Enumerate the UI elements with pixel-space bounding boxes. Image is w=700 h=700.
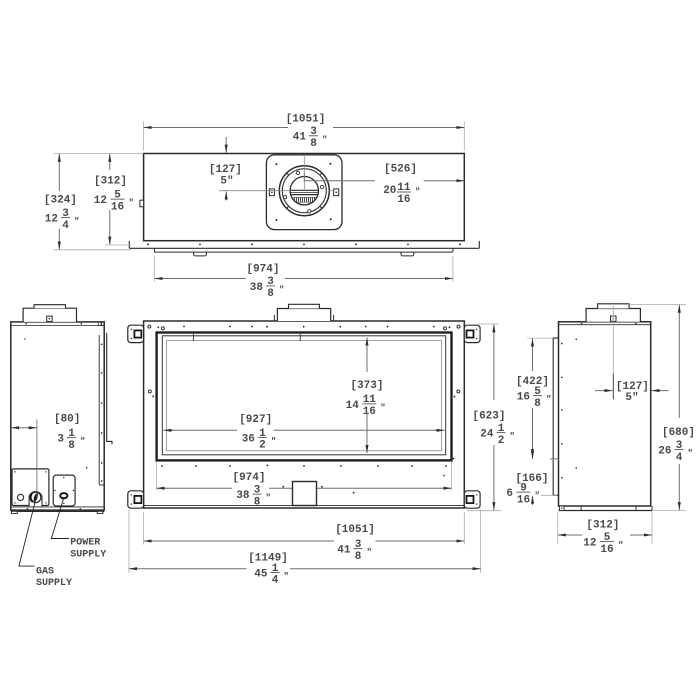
svg-text:SUPPLY: SUPPLY	[36, 578, 72, 589]
svg-text:3: 3	[267, 276, 274, 288]
svg-text:3: 3	[310, 126, 317, 138]
svg-text:41: 41	[293, 132, 307, 144]
svg-text:[1051]: [1051]	[286, 113, 326, 125]
svg-text:[80]: [80]	[54, 414, 80, 426]
svg-text:": "	[367, 548, 372, 558]
svg-text:": "	[74, 217, 79, 227]
svg-text:": "	[380, 403, 385, 413]
svg-text:[373]: [373]	[350, 380, 383, 392]
svg-text:": "	[510, 432, 515, 442]
svg-text:3: 3	[62, 208, 69, 220]
svg-text:8: 8	[355, 551, 362, 563]
svg-text:6: 6	[506, 488, 513, 500]
svg-text:": "	[266, 493, 271, 503]
svg-text:": "	[80, 437, 85, 447]
svg-text:[526]: [526]	[384, 163, 417, 175]
svg-text:4: 4	[272, 575, 279, 587]
svg-text:41: 41	[337, 545, 351, 557]
svg-text:": "	[322, 135, 327, 145]
svg-text:2: 2	[259, 440, 266, 452]
svg-text:": "	[546, 395, 551, 405]
svg-text:[1051]: [1051]	[335, 524, 375, 536]
svg-text:38: 38	[236, 490, 250, 502]
svg-text:[974]: [974]	[232, 472, 265, 484]
svg-text:3: 3	[355, 539, 362, 551]
svg-text:SUPPLY: SUPPLY	[70, 549, 106, 560]
svg-text:8: 8	[254, 496, 261, 508]
svg-text:1: 1	[68, 428, 75, 440]
svg-text:": "	[284, 572, 289, 582]
svg-text:9: 9	[520, 482, 527, 494]
svg-text:38: 38	[250, 282, 264, 294]
svg-text:5": 5"	[220, 176, 233, 188]
svg-text:": "	[415, 187, 420, 197]
svg-text:26: 26	[658, 446, 671, 458]
svg-text:[623]: [623]	[472, 411, 505, 423]
svg-text:3: 3	[57, 434, 64, 446]
svg-text:11: 11	[363, 394, 377, 406]
svg-text:24: 24	[480, 429, 494, 441]
svg-text:4: 4	[676, 452, 683, 464]
svg-text:36: 36	[242, 433, 255, 445]
svg-text:5: 5	[114, 189, 121, 201]
svg-text:16: 16	[363, 406, 376, 418]
svg-text:12: 12	[45, 214, 58, 226]
svg-text:20: 20	[383, 185, 396, 197]
svg-text:": "	[688, 449, 693, 459]
svg-text:[974]: [974]	[246, 264, 279, 276]
svg-text:[1149]: [1149]	[248, 552, 288, 564]
svg-text:[312]: [312]	[94, 176, 127, 188]
svg-text:[127]: [127]	[209, 164, 242, 176]
svg-text:16: 16	[600, 544, 613, 556]
svg-text:": "	[279, 285, 284, 295]
svg-text:16: 16	[111, 201, 124, 213]
svg-text:45: 45	[254, 568, 268, 580]
svg-text:5": 5"	[625, 392, 638, 404]
svg-text:POWER: POWER	[70, 538, 100, 549]
svg-text:4: 4	[62, 220, 69, 232]
svg-text:5: 5	[534, 386, 541, 398]
svg-text:3: 3	[676, 440, 683, 452]
svg-text:14: 14	[346, 400, 360, 412]
svg-text:": "	[271, 437, 276, 447]
svg-text:[927]: [927]	[239, 414, 272, 426]
svg-text:2: 2	[498, 435, 505, 447]
svg-text:1: 1	[498, 423, 505, 435]
svg-text:[312]: [312]	[586, 519, 619, 531]
svg-text:8: 8	[267, 288, 274, 300]
svg-text:": "	[618, 541, 623, 551]
svg-text:1: 1	[259, 428, 266, 440]
svg-text:1: 1	[272, 563, 279, 575]
svg-text:[422]: [422]	[516, 376, 549, 388]
svg-text:12: 12	[583, 538, 596, 550]
svg-text:GAS: GAS	[36, 567, 54, 578]
svg-text:": "	[129, 198, 134, 208]
svg-text:3: 3	[254, 484, 261, 496]
svg-text:8: 8	[534, 398, 541, 410]
svg-text:[324]: [324]	[44, 195, 77, 207]
svg-text:5: 5	[604, 532, 611, 544]
svg-text:12: 12	[94, 195, 107, 207]
svg-text:[680]: [680]	[662, 427, 695, 439]
svg-text:16: 16	[517, 392, 530, 404]
svg-text:8: 8	[68, 440, 75, 452]
svg-text:16: 16	[397, 194, 410, 206]
svg-text:": "	[535, 491, 540, 501]
svg-text:8: 8	[310, 138, 317, 150]
svg-text:16: 16	[517, 494, 530, 506]
